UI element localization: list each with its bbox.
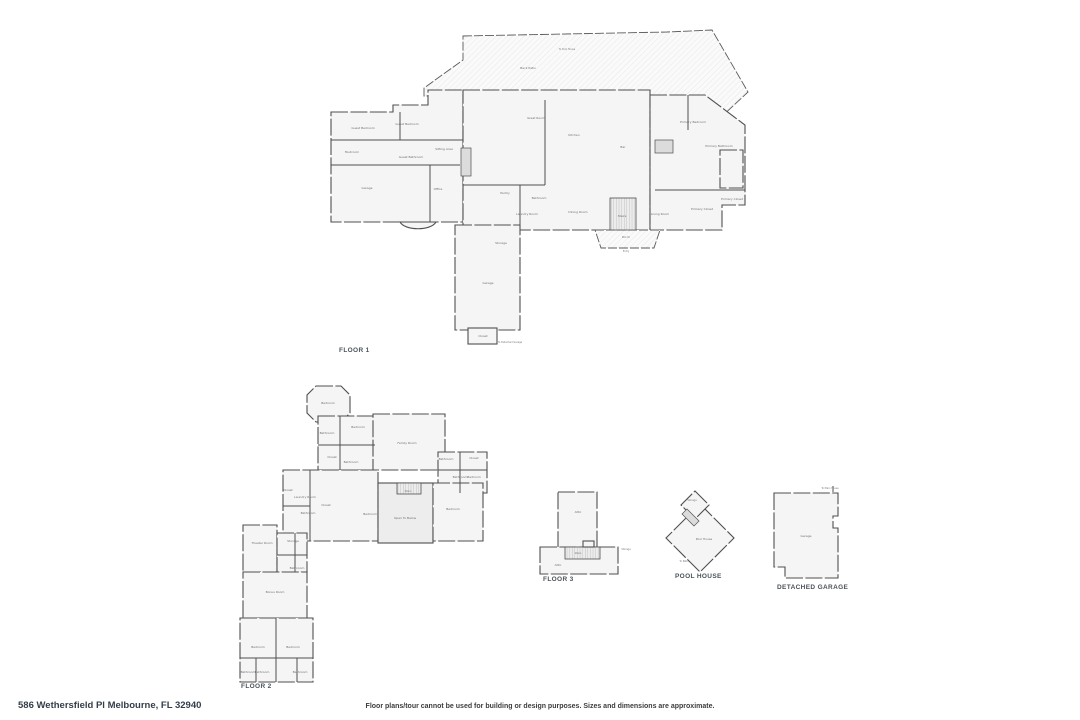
floor1-fireplace: [655, 140, 673, 153]
room-label-attic: Attic: [575, 510, 582, 514]
floor-plan-canvas: Back PatioTo Pool HouseGreat RoomSitting…: [0, 0, 1080, 720]
room-label-storage: Storage: [287, 539, 299, 543]
floor1-left-wing: [331, 90, 463, 222]
room-label-closet: Closet: [321, 503, 331, 507]
room-label-dining-room: Dining Room: [568, 210, 587, 214]
room-label-garage: Garage: [483, 281, 494, 285]
room-label-storage: Storage: [495, 241, 507, 245]
room-label-sitting-area: Sitting Area: [435, 147, 453, 151]
floor1-porch-area: [595, 230, 660, 248]
floor3-stairs: [565, 547, 600, 559]
floor1-wine-nook: [461, 148, 471, 176]
room-label-bathroom: Bathroom: [532, 196, 547, 200]
detached-garage-heading: DETACHED GARAGE: [777, 584, 848, 591]
room-label-back-patio: Back Patio: [520, 66, 536, 70]
room-label-mudroom: Mudroom: [345, 150, 359, 154]
room-label-theater-room: Theater Room: [250, 541, 272, 545]
room-label-closet: Closet: [469, 456, 479, 460]
floor2-plan: BedroomBathroomBedroomClosetBathroomFami…: [240, 386, 487, 682]
room-label-guest-bedroom: Guest Bedroom: [351, 126, 374, 130]
room-label-to-pool-house: To Pool House: [559, 48, 576, 51]
room-label-guest-bedroom: Guest Bedroom: [395, 122, 418, 126]
room-label-guest-bathroom: Guest Bathroom: [399, 155, 424, 159]
room-label-bathroom: Bathroom: [255, 670, 270, 674]
pool-house-heading: POOL HOUSE: [675, 573, 722, 580]
room-label-to-main-house: To Main House: [821, 487, 839, 490]
room-label-garage: Garage: [801, 534, 812, 538]
room-label-living-room: Living Room: [651, 212, 669, 216]
room-label-stairs: Stairs: [618, 214, 627, 218]
room-label-primary-closet: Primary Closet: [721, 197, 744, 201]
room-label-open-to-below: Open To Below: [394, 516, 417, 520]
room-label-bonus-room: Bonus Room: [266, 590, 285, 594]
room-label-bedroom: Bedroom: [351, 425, 365, 429]
room-label-bathroom: Bathroom: [320, 431, 335, 435]
room-label-bathroom: Bathroom: [290, 566, 305, 570]
floor1-right-bump: [720, 150, 743, 188]
room-label-garage: Garage: [362, 186, 373, 190]
room-label-bathroom: Bathroom: [344, 460, 359, 464]
floor2-right-bedroom: [433, 483, 483, 541]
room-label-porch: Porch: [622, 235, 630, 239]
room-label-office: Office: [434, 187, 443, 191]
detached-garage-plan: To Main HouseGarage: [774, 486, 839, 578]
room-label-bathroom: Bathroom: [453, 475, 468, 479]
room-label-bedroom: Bedroom: [446, 507, 460, 511]
floor1-garage-extension: [455, 225, 520, 330]
room-label-laundry-room: Laundry Room: [294, 495, 316, 499]
room-label-closet: Closet: [283, 488, 293, 492]
room-label-storage: Storage: [687, 499, 697, 502]
room-label-pantry: Pantry: [500, 191, 510, 195]
room-label-bathroom: Bathroom: [241, 670, 256, 674]
room-label-bedroom: Bedroom: [251, 645, 265, 649]
room-label-primary-bedroom: Primary Bedroom: [680, 120, 706, 124]
floor2-heading: FLOOR 2: [241, 683, 272, 690]
room-label-primary-bathroom: Primary Bathroom: [705, 144, 732, 148]
room-label-storage: Storage: [621, 548, 631, 551]
room-label-bathroom: Bathroom: [293, 670, 308, 674]
floor1-bay-window: [400, 222, 436, 229]
room-label-kitchen: Kitchen: [568, 133, 579, 137]
room-label-laundry-room: Laundry Room: [516, 212, 538, 216]
floor2-left-theater: [243, 525, 277, 572]
room-label-closet: Closet: [327, 455, 337, 459]
pool-house-plan: StoragePool HouseTo Patio: [666, 491, 734, 572]
room-label-bedroom: Bedroom: [363, 512, 377, 516]
room-label-family-room: Family Room: [397, 441, 416, 445]
room-label-to-detached-garage: To Detached Garage: [498, 341, 523, 344]
floor3-heading: FLOOR 3: [543, 576, 574, 583]
room-label-bar: Bar: [620, 145, 626, 149]
room-label-great-room: Great Room: [527, 116, 545, 120]
floor3-landing: [583, 541, 594, 547]
room-label-bedroom: Bedroom: [321, 401, 335, 405]
room-label-stairs: Stairs: [405, 490, 413, 493]
room-label-to-patio: To Patio: [679, 560, 689, 563]
disclaimer-text: Floor plans/tour cannot be used for buil…: [0, 703, 1080, 710]
room-label-closet: Closet: [478, 334, 488, 338]
room-label-entry: Entry: [623, 250, 630, 253]
floor1-heading: FLOOR 1: [339, 347, 370, 354]
room-label-stairs: Stairs: [575, 552, 583, 555]
room-label-pool-house: Pool House: [696, 537, 713, 541]
room-label-bedroom: Bedroom: [286, 645, 300, 649]
floor-plan-sheet: Back PatioTo Pool HouseGreat RoomSitting…: [0, 0, 1080, 720]
room-label-primary-closet: Primary Closet: [691, 207, 714, 211]
room-label-attic: Attic: [555, 563, 562, 567]
floor2-bonus-room: [243, 572, 307, 618]
room-label-bathroom: Bathroom: [301, 511, 316, 515]
room-label-bathroom: Bathroom: [439, 457, 454, 461]
room-label-bedroom: Bedroom: [467, 475, 481, 479]
floor3-plan: AtticStairsAtticStorage: [540, 492, 631, 574]
floor1-plan: Back PatioTo Pool HouseGreat RoomSitting…: [331, 30, 748, 344]
